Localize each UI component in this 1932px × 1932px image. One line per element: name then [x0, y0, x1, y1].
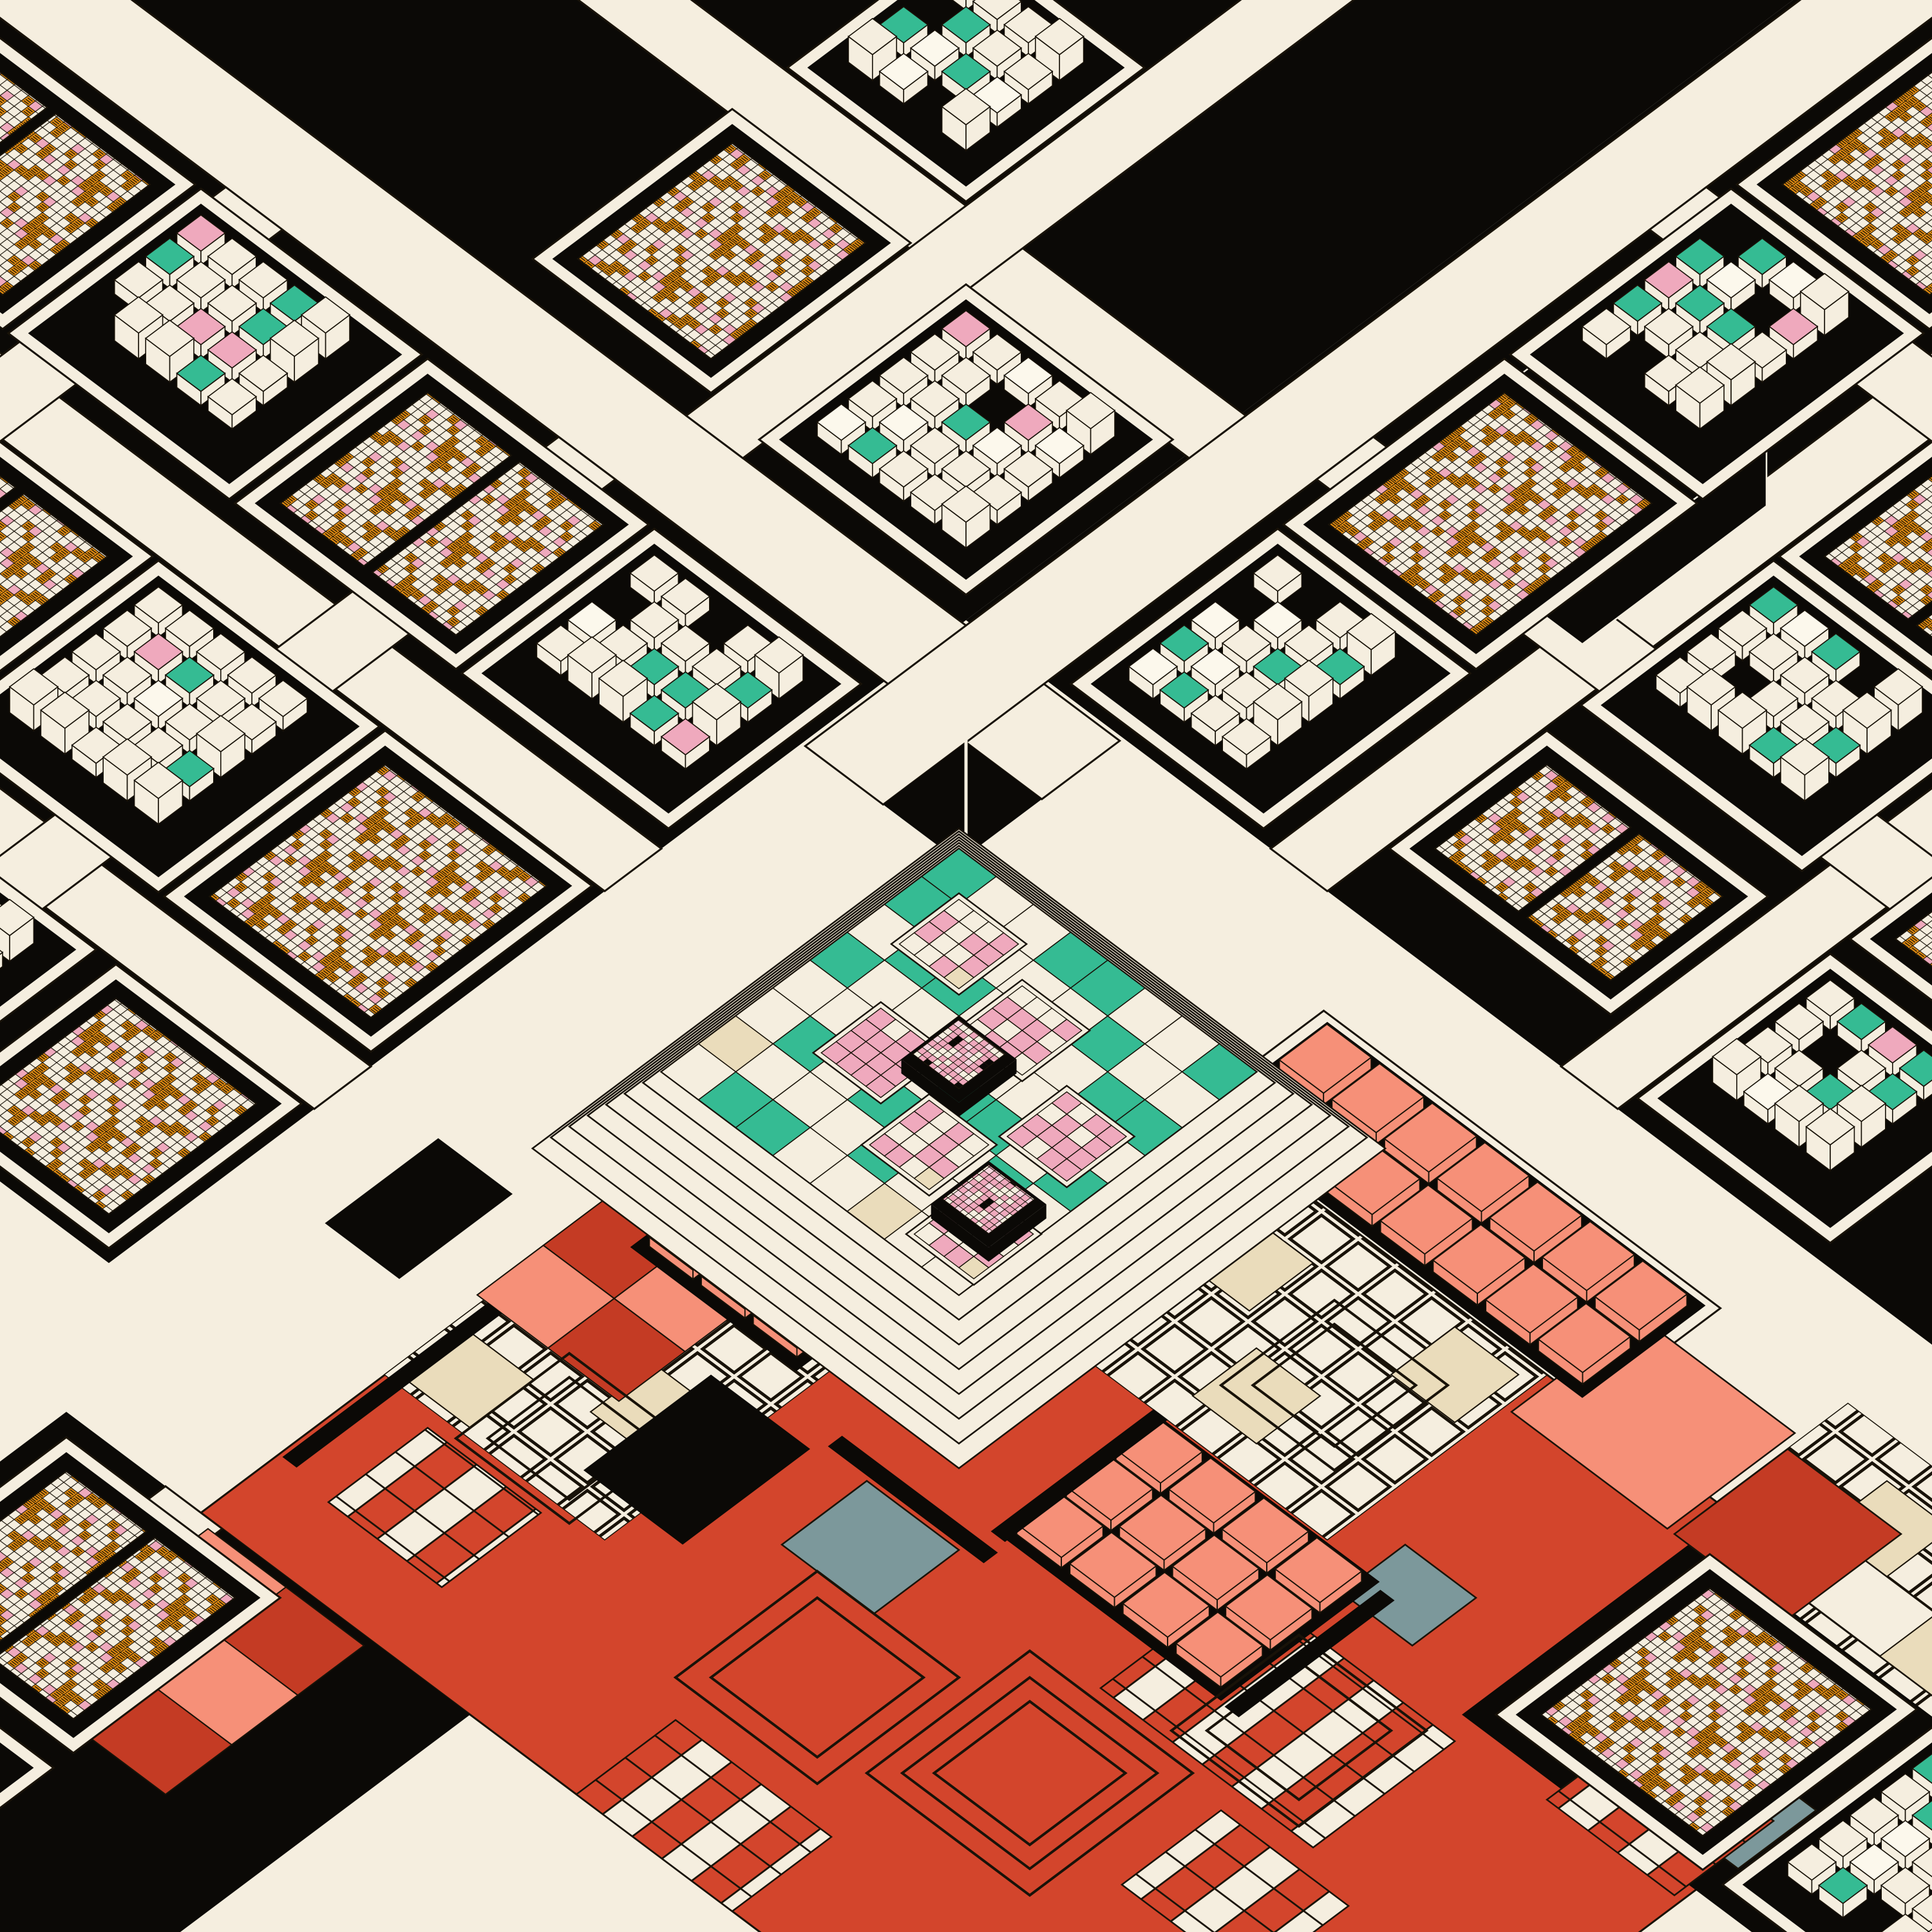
scene-canvas	[0, 0, 1932, 1932]
isometric-city-artwork	[0, 0, 1932, 1932]
